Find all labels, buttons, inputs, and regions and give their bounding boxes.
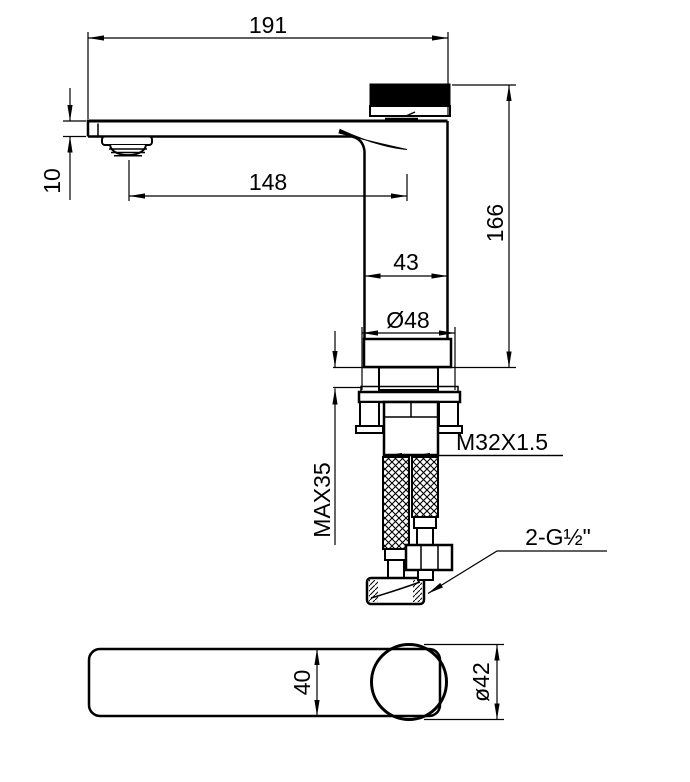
hose-connection-label: 2-G½" <box>525 524 591 550</box>
dim-spout-thickness-label: 10 <box>39 168 65 194</box>
control-knob <box>370 84 450 119</box>
dim-spout-thickness: 10 <box>39 88 86 200</box>
mounting-bolt-right <box>439 402 458 426</box>
bolt-foot-left <box>356 426 383 433</box>
hose-ferrule-right <box>414 517 436 528</box>
hose-tube-right <box>417 528 433 545</box>
dim-overall-height-label: 166 <box>482 204 508 242</box>
aerator-dome <box>110 145 146 155</box>
base-flange <box>364 339 451 367</box>
dim-body-width-label: 43 <box>393 249 419 275</box>
technical-drawing-page: 191 10 148 166 43 <box>0 0 690 782</box>
hose-tube-left <box>388 560 404 578</box>
dim-spout-reach-label: 148 <box>249 169 287 195</box>
dim-overall-height: 166 <box>452 85 516 368</box>
aerator <box>102 137 152 156</box>
dim-spout-width-label: 40 <box>289 670 315 696</box>
hose-ferrule-left <box>385 549 407 560</box>
dim-base-diameter-label: Ø48 <box>386 307 429 333</box>
mounting-bolt-left <box>360 402 379 426</box>
knob-cap <box>370 84 450 106</box>
dim-knob-diameter-label: ø42 <box>468 662 494 702</box>
dim-max-mounting-label: MAX35 <box>309 462 335 537</box>
faucet-dimension-drawing: 191 10 148 166 43 <box>0 0 690 782</box>
dim-overall-length-label: 191 <box>249 12 287 38</box>
elbow-fitting <box>367 578 424 604</box>
shank-thread-label: M32X1.5 <box>456 429 548 455</box>
top-view: 40 ø42 <box>89 645 504 720</box>
braided-hose-right <box>412 457 438 517</box>
supply-hoses <box>367 457 452 604</box>
dim-body-width: 43 <box>365 249 448 276</box>
spout-top-view-body <box>89 649 440 716</box>
hex-nut-stub <box>418 570 433 580</box>
dim-spout-width: 40 <box>289 649 317 716</box>
dim-max-mounting-thickness: MAX35 <box>309 331 335 545</box>
braided-hose-left <box>383 457 409 549</box>
mounting-hardware <box>356 368 462 456</box>
hex-nut <box>406 545 452 570</box>
hex-nut-fitting <box>406 545 452 580</box>
elbow-nut-hatch-left <box>369 580 378 602</box>
spout-body-transition-curve <box>339 130 407 150</box>
mounting-washer <box>359 392 460 402</box>
knob-top-view-circle <box>372 645 447 720</box>
aerator-lip <box>102 137 152 146</box>
label-hose-connection: 2-G½" <box>428 524 607 594</box>
side-view: 191 10 148 166 43 <box>39 12 607 604</box>
